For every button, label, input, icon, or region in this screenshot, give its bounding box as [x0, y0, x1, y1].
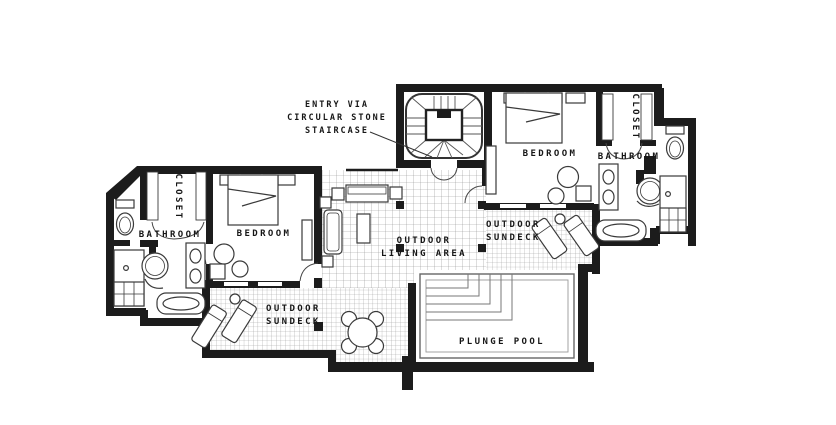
right-sundeck-label-line1: OUTDOOR — [486, 220, 541, 230]
deck-dining-set — [342, 312, 384, 354]
left-bedroom-bench — [302, 220, 312, 260]
right-bedroom-bench — [486, 146, 496, 194]
living-sofa — [332, 185, 402, 202]
right-vanity — [599, 164, 618, 210]
left-round-shower — [142, 253, 168, 288]
right-bathtub — [596, 220, 646, 241]
left-bathroom-label: BATHROOM — [139, 230, 202, 240]
left-sundeck-label-line2: SUNDECK — [266, 317, 321, 327]
plunge-pool-label: PLUNGE POOL — [459, 337, 545, 347]
entry-annotation-line2: CIRCULAR STONE — [287, 113, 387, 123]
entry-annotation-line1: ENTRY VIA — [305, 100, 369, 110]
living-area-label-line1: OUTDOOR — [397, 236, 452, 246]
right-bathroom-label: BATHROOM — [598, 152, 661, 162]
left-bathtub — [157, 293, 205, 314]
right-round-shower — [637, 178, 663, 206]
right-bedroom-label: BEDROOM — [523, 149, 578, 159]
left-toilet — [116, 200, 134, 235]
entry-annotation-line3: STAIRCASE — [305, 126, 369, 136]
left-closet-label: CLOSET — [173, 174, 183, 221]
plunge-pool — [414, 270, 578, 364]
right-toilet — [666, 126, 684, 159]
left-shower — [114, 250, 144, 306]
left-bedroom-chairs — [210, 244, 248, 279]
right-sundeck-label-line2: SUNDECK — [486, 233, 541, 243]
left-vanity — [186, 243, 205, 288]
right-closet-label: CLOSET — [630, 94, 640, 141]
right-closet-shelves — [602, 94, 652, 140]
living-coffee-table — [357, 214, 370, 243]
right-bed — [504, 93, 585, 143]
left-bedroom-label: BEDROOM — [237, 229, 292, 239]
left-bed — [220, 175, 295, 225]
floor-plan: ENTRY VIA CIRCULAR STONE STAIRCASE CLOSE… — [0, 0, 836, 425]
right-bedroom-chairs — [548, 167, 591, 205]
right-shower — [660, 176, 686, 232]
floor-plan-drawing: ENTRY VIA CIRCULAR STONE STAIRCASE CLOSE… — [0, 0, 836, 425]
left-sundeck-label-line1: OUTDOOR — [266, 304, 321, 314]
living-area-label-line2: LIVING AREA — [381, 249, 467, 259]
